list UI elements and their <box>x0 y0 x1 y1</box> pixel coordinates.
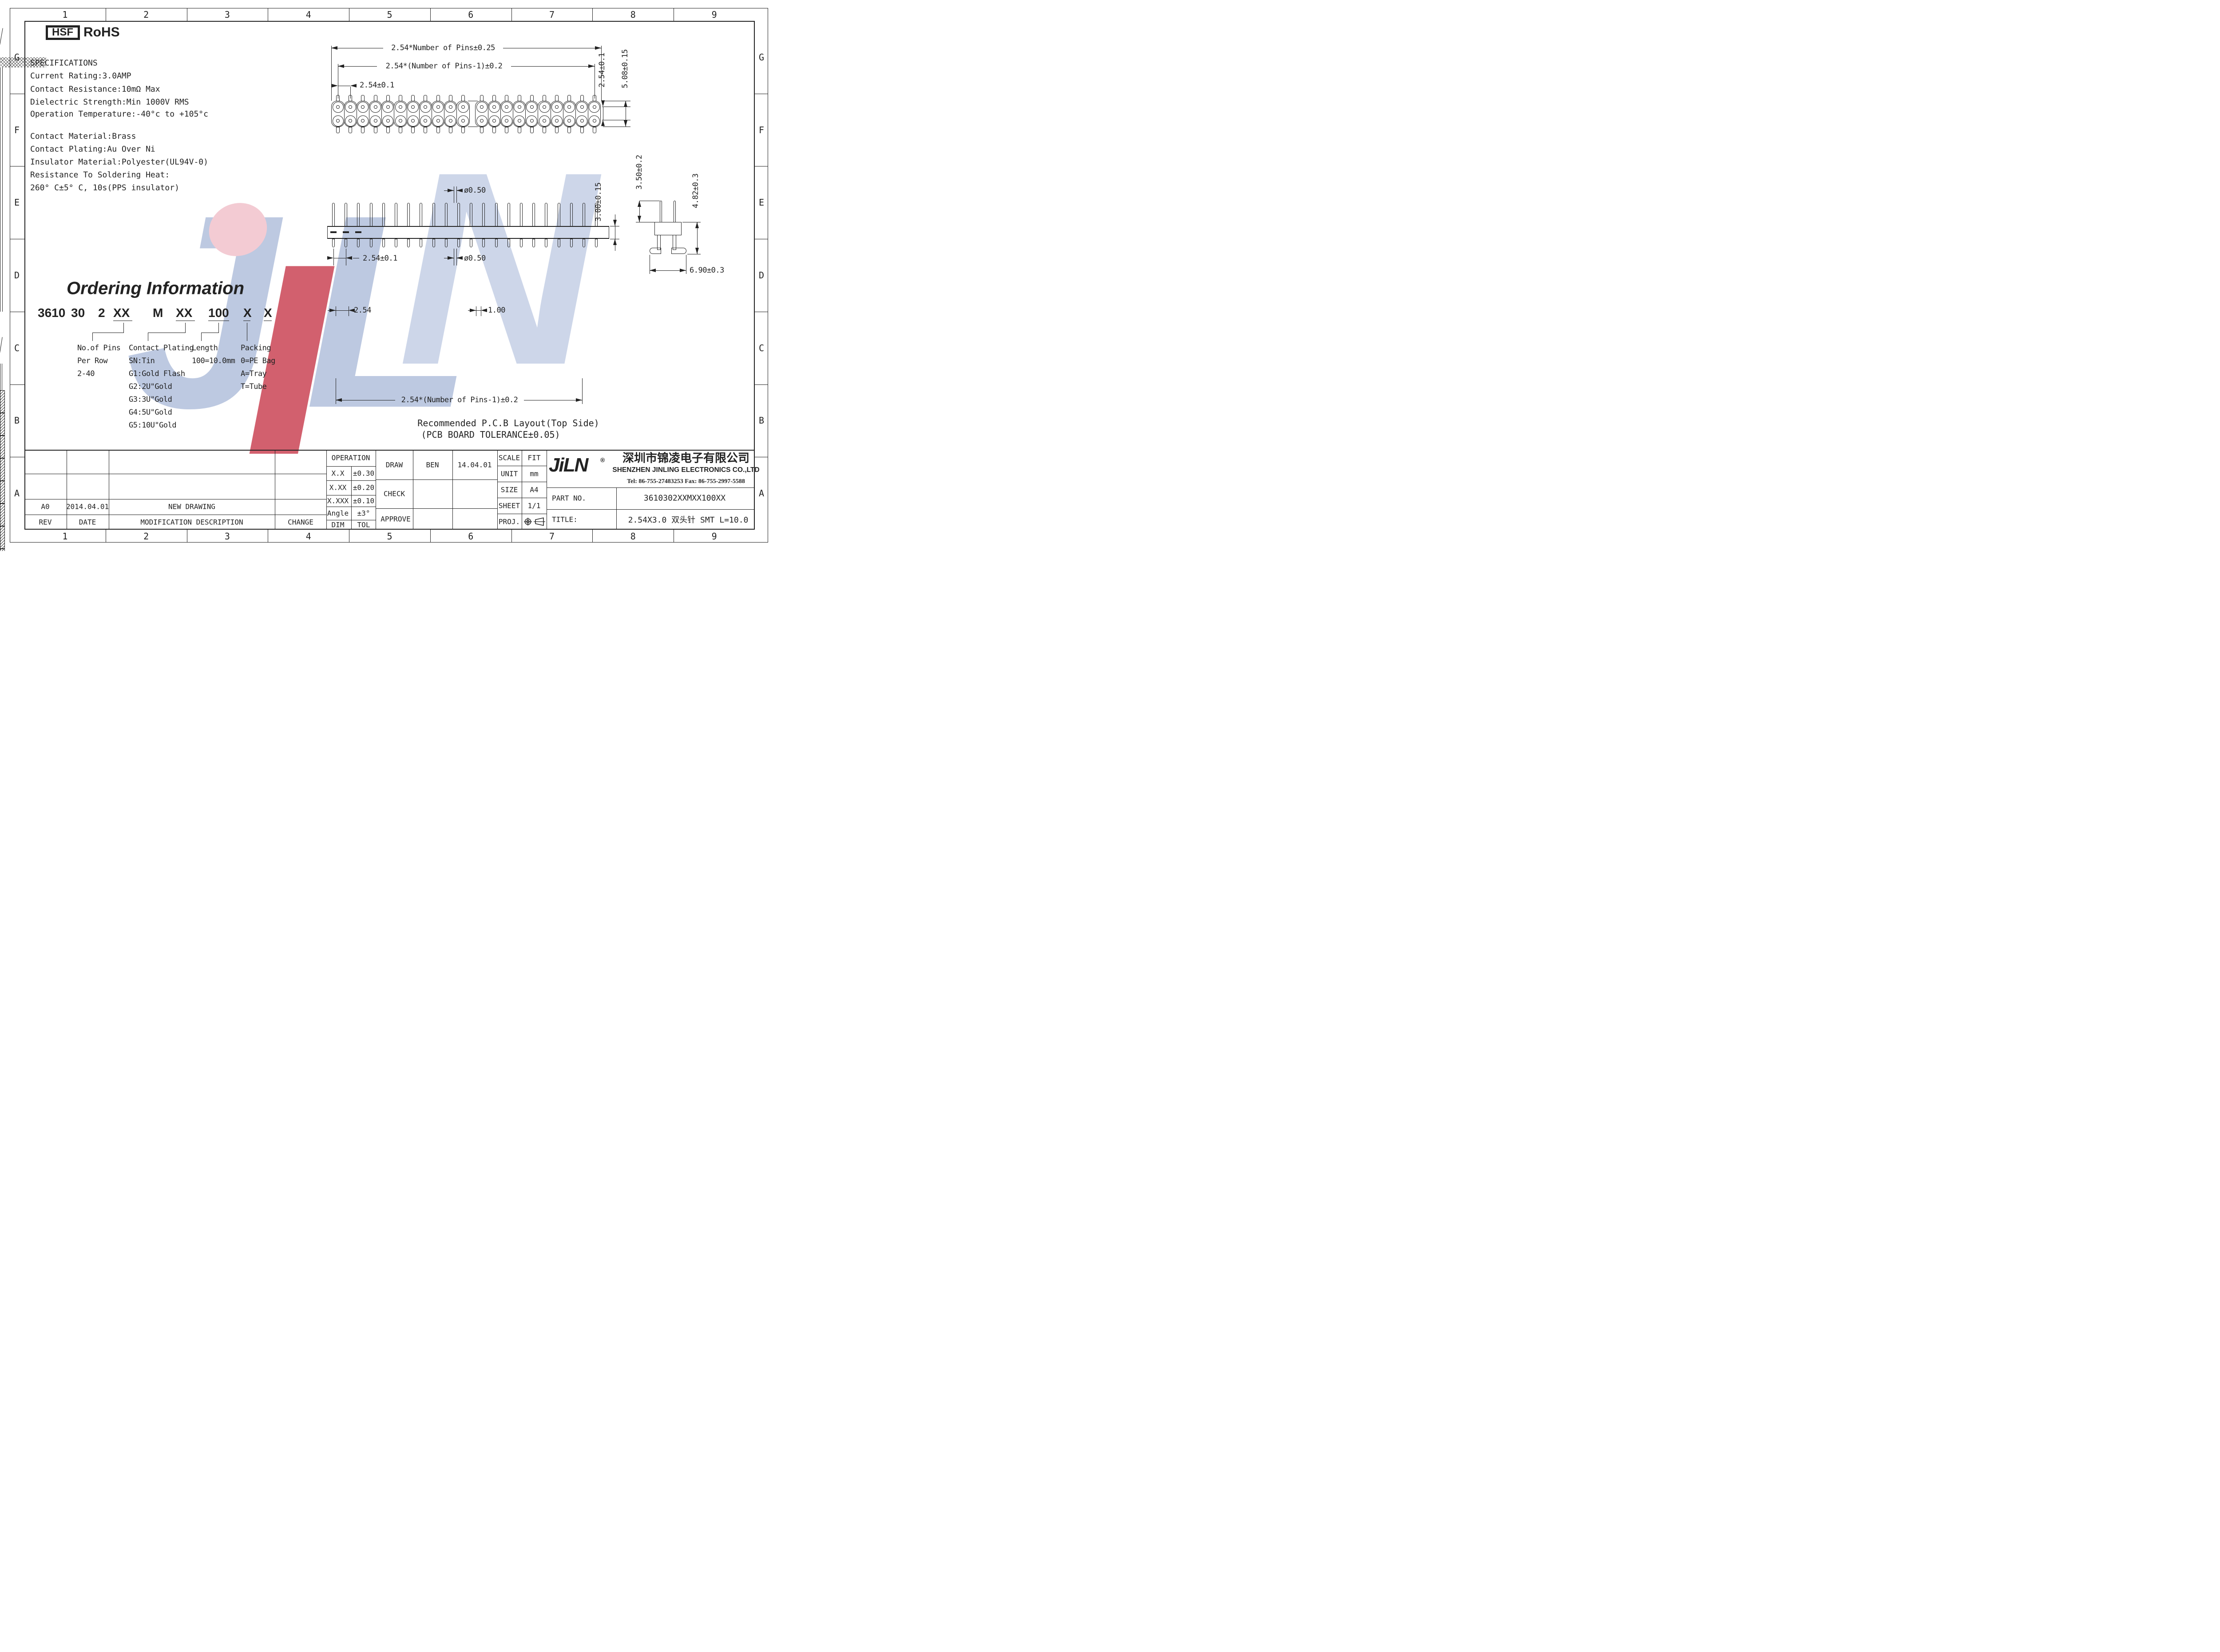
topview-contact-inner <box>336 105 340 109</box>
grid-col-label-top: 4 <box>306 9 311 20</box>
ordering-underline <box>264 321 272 321</box>
topview-pin-stub <box>530 127 534 133</box>
spec-line: 260° C±5° C, 10s(PPS insulator) <box>30 183 179 193</box>
dim-endview-foot-span: 6.90±0.3 <box>690 266 724 275</box>
topview-contact-inner <box>399 105 402 109</box>
sideview-pin-top <box>332 203 335 226</box>
dim-sideview-pin-dia-top: ø0.50 <box>464 186 486 195</box>
a <box>470 309 476 312</box>
band-divider-bottom <box>268 530 268 543</box>
topview-pin-stub <box>386 127 390 133</box>
band-divider-top <box>106 8 106 21</box>
grid-row-label-left: F <box>14 125 20 135</box>
grid-row-label-right: A <box>759 488 764 499</box>
band-divider-top <box>187 8 187 21</box>
ordering-annotation-line: SN:Tin <box>129 357 155 365</box>
ordering-annotation-line: Per Row <box>77 357 107 365</box>
topview-pin-stub <box>361 127 365 133</box>
tb-hline <box>376 508 497 509</box>
sideview-pin-bottom <box>432 239 435 247</box>
check-label: CHECK <box>384 490 405 498</box>
tb-hline <box>326 507 376 507</box>
topview-pin-stub <box>518 95 521 101</box>
ordering-code-group: X <box>243 306 252 320</box>
ordering-code-group: M <box>153 306 163 320</box>
rev-header-change: CHANGE <box>288 518 313 527</box>
dim <box>511 66 595 67</box>
grid-row-label-right: E <box>759 197 764 208</box>
tb-vline <box>497 450 498 530</box>
part-no-value: 3610302XXMXX100XX <box>644 494 725 503</box>
sideview-pin-top <box>595 203 598 226</box>
grid-col-label-top: 6 <box>468 9 473 20</box>
a <box>336 398 342 402</box>
grid-col-label-bottom: 2 <box>143 531 149 542</box>
topview-pin-stub <box>436 95 440 101</box>
band-divider-bottom <box>187 530 187 543</box>
tb-hline <box>326 520 376 520</box>
grid-row-label-right: C <box>759 343 764 353</box>
a <box>329 309 336 312</box>
a <box>695 222 699 228</box>
leader <box>92 333 124 333</box>
topview-pin-stub <box>336 127 340 133</box>
ordering-annotation-line: 0=PE Bag <box>241 357 275 365</box>
ordering-code-group: 2 <box>98 306 105 320</box>
grid-col-label-top: 7 <box>549 9 555 20</box>
sideview-pin-bottom <box>357 239 360 247</box>
spec-line: Contact Material:Brass <box>30 132 136 141</box>
draw-label: DRAW <box>386 461 403 469</box>
a <box>448 256 454 260</box>
band-divider-bottom <box>592 530 593 543</box>
tb-vline <box>616 487 617 530</box>
topview-pin-stub <box>424 95 427 101</box>
dim-pcb-pad-width: 1.00 <box>488 306 505 315</box>
sideview-contact-bar <box>355 231 361 233</box>
topview-pin-stub <box>424 127 427 133</box>
topview-contact-inner <box>480 119 484 123</box>
tol-header: OPERATION <box>332 454 370 462</box>
sideview-pin-top <box>432 203 435 226</box>
band-divider-left <box>10 384 24 385</box>
topview-contact-inner <box>436 119 440 123</box>
topview-contact-inner <box>449 119 452 123</box>
sideview-pin-bottom <box>595 239 598 247</box>
tb-line <box>24 450 755 451</box>
tb-hline <box>376 479 497 480</box>
grid-col-label-bottom: 3 <box>225 531 230 542</box>
unit-label: UNIT <box>501 470 518 478</box>
topview-pin-stub <box>492 95 496 101</box>
dim <box>336 400 395 400</box>
band-divider-right <box>755 166 768 166</box>
sideview-pin-top <box>445 203 448 226</box>
sideview-pin-top <box>420 203 422 226</box>
unit-value: mm <box>530 470 538 478</box>
topview-pin-stub <box>593 127 596 133</box>
ordering-annotation-line: 100=10.0mm <box>192 357 235 365</box>
sideview-pin-bottom <box>420 239 422 247</box>
band-divider-right <box>755 312 768 312</box>
grid-col-label-bottom: 4 <box>306 531 311 542</box>
size-value: A4 <box>530 486 538 494</box>
topview-pin-stub <box>543 95 546 101</box>
rev-header-rev: REV <box>39 518 52 527</box>
sideview-pin-bottom <box>382 239 385 247</box>
sideview-pin-bottom <box>507 239 510 247</box>
sideview-pin-top <box>407 203 410 226</box>
tb-vline <box>67 450 67 530</box>
topview-pin-stub <box>580 95 584 101</box>
topview-break-edge <box>468 101 478 101</box>
topview-pin-stub <box>555 95 559 101</box>
a <box>601 120 605 126</box>
sideview-pin-bottom <box>407 239 410 247</box>
dim <box>338 86 350 86</box>
scale-value: FIT <box>528 454 541 462</box>
leader <box>148 333 148 341</box>
dim <box>524 400 582 400</box>
topview-pin-stub <box>567 95 571 101</box>
sideview-pin-bottom <box>457 239 460 247</box>
rev-value: A0 <box>41 503 49 511</box>
a <box>456 256 463 260</box>
topview-pin-stub <box>411 127 415 133</box>
ordering-title: Ordering Information <box>67 279 244 299</box>
endview-foot <box>650 248 661 254</box>
a <box>695 248 699 254</box>
tb-hline <box>497 514 547 514</box>
rohs-badge: RoHS <box>83 25 120 40</box>
tb-hline <box>24 499 326 499</box>
pcb-caption-1: Recommended P.C.B Layout(Top Side) <box>417 418 599 428</box>
ordering-annotation-line: A=Tray <box>241 369 266 378</box>
grid-col-label-top: 8 <box>630 9 636 20</box>
endview-foot <box>671 248 686 254</box>
tb-vline <box>275 450 275 530</box>
topview-contact-inner <box>593 105 596 109</box>
topview-pin-stub <box>530 95 534 101</box>
tol-r2-val: ±0.10 <box>353 497 374 505</box>
ordering-annotation-line: G5:10U"Gold <box>129 421 176 430</box>
grid-col-label-bottom: 1 <box>62 531 67 542</box>
draw-date: 14.04.01 <box>457 461 492 469</box>
dim <box>582 378 583 404</box>
band-divider-bottom <box>511 530 512 543</box>
dim <box>687 254 701 254</box>
a <box>346 256 352 260</box>
ordering-underline <box>208 321 229 321</box>
grid-col-label-top: 5 <box>387 9 392 20</box>
leader <box>247 323 247 341</box>
tb-vline <box>109 450 109 530</box>
sideview-pin-bottom <box>545 239 547 247</box>
topview-contact-inner <box>374 119 377 123</box>
dim-topview-row-pitch: 2.54±0.1 <box>598 53 607 87</box>
topview-pin-stub <box>518 127 521 133</box>
hsf-badge: HSF <box>52 26 73 39</box>
sideview-pin-top <box>532 203 535 226</box>
dim <box>686 255 686 274</box>
grid-row-label-right: G <box>759 52 764 63</box>
ordering-code-group: X <box>264 306 272 320</box>
dim <box>333 249 334 265</box>
ordering-annotation-line: Length <box>192 344 218 353</box>
band-divider-top <box>268 8 268 21</box>
band-divider-right <box>755 457 768 457</box>
band-divider-top <box>430 8 431 21</box>
dim <box>476 306 476 316</box>
tb-vline <box>326 450 327 530</box>
sideview-pin-top <box>345 203 347 226</box>
dim <box>331 46 332 101</box>
band-divider-left <box>10 457 24 457</box>
dim-topview-overall: 2.54*Number of Pins±0.25 <box>391 44 495 52</box>
rev-header-date: DATE <box>79 518 96 527</box>
topview-pin-stub <box>567 127 571 133</box>
sideview-pin-bottom <box>470 239 472 247</box>
grid-col-label-bottom: 8 <box>630 531 636 542</box>
leader <box>185 323 186 333</box>
title-label: TITLE: <box>552 515 578 524</box>
topview-contact-inner <box>436 105 440 109</box>
tol-r0-val: ±0.30 <box>353 469 374 478</box>
topview-pin-stub <box>505 127 508 133</box>
topview-pin-stub <box>374 95 377 101</box>
sideview-contact-bar <box>343 231 349 233</box>
topview-contact-inner <box>336 119 340 123</box>
ordering-annotation-line: G1:Gold Flash <box>129 369 185 378</box>
endview-pin <box>660 201 662 222</box>
topview-pin-stub <box>399 127 402 133</box>
dim-sideview-pin-dia-bottom: ø0.50 <box>464 254 486 263</box>
grid-row-label-left: G <box>14 52 20 63</box>
tol-footer-tol: TOL <box>357 521 370 529</box>
band-divider-left <box>10 312 24 312</box>
sideview-body <box>327 226 609 239</box>
drawing-sheet: J ı L N HSF RoHS Ordering Information 2.… <box>0 0 779 551</box>
tb-hline <box>497 482 547 482</box>
a <box>624 120 627 127</box>
ordering-annotation-line: G2:2U"Gold <box>129 382 172 391</box>
sideview-pin-top <box>357 203 360 226</box>
tol-footer-dim: DIM <box>332 521 345 529</box>
ordering-code-group: XX <box>113 306 130 320</box>
tol-r3-dim: Angle <box>327 509 349 518</box>
third-angle-projection-icon <box>524 517 545 527</box>
grid-col-label-bottom: 7 <box>549 531 555 542</box>
topview-pin-stub <box>374 127 377 133</box>
leader <box>92 333 93 341</box>
rev-date: 2014.04.01 <box>66 503 109 511</box>
band-divider-bottom <box>674 530 674 543</box>
sideview-pin-top <box>507 203 510 226</box>
dim-pcb-pitch: 2.54 <box>354 306 371 315</box>
a <box>638 216 641 222</box>
topview-pin-stub <box>492 127 496 133</box>
a <box>588 64 595 68</box>
tb-vline <box>452 450 453 530</box>
topview-contact-inner <box>580 105 584 109</box>
spec-line: Insulator Material:Polyester(UL94V-0) <box>30 158 208 167</box>
ordering-annotation-line: G3:3U"Gold <box>129 395 172 404</box>
dim-sideview-pitch-bottom: 2.54±0.1 <box>363 254 397 263</box>
dim-pcb-overall: 2.54*(Number of Pins-1)±0.2 <box>401 396 518 404</box>
a <box>349 309 355 312</box>
grid-row-label-right: F <box>759 125 764 135</box>
band-divider-top <box>349 8 349 21</box>
a <box>448 189 454 192</box>
grid-col-label-top: 1 <box>62 9 67 20</box>
tb-vline <box>522 450 522 530</box>
size-label: SIZE <box>501 486 518 494</box>
sideview-pin-bottom <box>445 239 448 247</box>
leader <box>218 323 219 333</box>
pcb-caption-2: (PCB BOARD TOLERANCE±0.05) <box>421 429 560 440</box>
tb-vline <box>413 450 413 530</box>
band-divider-bottom <box>106 530 106 543</box>
sideview-pin-top <box>370 203 373 226</box>
a <box>613 220 617 226</box>
tb-hline <box>547 487 755 488</box>
leader <box>123 323 124 333</box>
leader <box>201 333 202 341</box>
grid-col-label-bottom: 5 <box>387 531 392 542</box>
topview-pin-stub <box>555 127 559 133</box>
topview-contact-inner <box>530 119 534 123</box>
sideview-pin-bottom <box>495 239 498 247</box>
band-divider-bottom <box>430 530 431 543</box>
grid-row-label-left: A <box>14 488 20 499</box>
dim-topview-pitch: 2.54±0.1 <box>360 81 394 90</box>
ordering-annotation-line: 2-40 <box>77 369 95 378</box>
spec-line: Dielectric Strength:Min 1000V RMS <box>30 98 189 107</box>
sideview-pin-bottom <box>558 239 560 247</box>
ordering-code-group: XX <box>176 306 192 320</box>
topview-pin-stub <box>349 127 352 133</box>
dim <box>336 306 336 316</box>
ordering-underline <box>176 321 195 321</box>
band-divider-top <box>674 8 674 21</box>
ordering-annotation-line: No.of Pins <box>77 344 120 353</box>
topview-contact-inner <box>530 105 534 109</box>
dim <box>636 222 654 222</box>
grid-col-label-bottom: 9 <box>712 531 717 542</box>
a <box>332 84 338 87</box>
sideview-pin-bottom <box>520 239 523 247</box>
company-reg-mark: ® <box>600 456 605 464</box>
topview-contact-inner <box>386 105 390 109</box>
topview-contact-inner <box>580 119 584 123</box>
a <box>595 46 601 50</box>
spec-line: Resistance To Soldering Heat: <box>30 170 170 180</box>
topview-contact-inner <box>399 119 402 123</box>
tb-hline <box>326 480 376 481</box>
spec-line: Contact Plating:Au Over Ni <box>30 145 155 154</box>
ordering-annotation-line: Packing <box>241 344 271 353</box>
topview-pin-stub <box>449 127 452 133</box>
sideview-contact-bar <box>330 231 337 233</box>
topview-pin-stub <box>480 95 484 101</box>
sideview-pin-top <box>583 203 585 226</box>
topview-contact-inner <box>461 119 465 123</box>
topview-pin-stub <box>449 95 452 101</box>
topview-pin-stub <box>436 127 440 133</box>
dim-endview-body-foot: 4.82±0.3 <box>691 174 700 208</box>
topview-pin-stub <box>399 95 402 101</box>
dim <box>336 310 349 311</box>
topview-contact-inner <box>374 105 377 109</box>
topview-contact-inner <box>461 105 465 109</box>
draw-name: BEN <box>426 461 439 469</box>
grid-col-label-top: 9 <box>712 9 717 20</box>
tb-vline <box>547 450 547 530</box>
dim <box>333 258 346 258</box>
company-name-cn: 深圳市锦凌电子有限公司 <box>622 449 749 466</box>
sideview-pin-bottom <box>395 239 397 247</box>
ordering-code-group: 30 <box>71 306 85 320</box>
sheet-value: 1/1 <box>528 502 541 510</box>
a <box>624 101 627 107</box>
spec-line: Operation Temperature:-40°c to +105°c <box>30 110 208 119</box>
ordering-annotation-line: Contact Plating <box>129 344 194 353</box>
topview-pin-stub <box>543 127 546 133</box>
a <box>350 84 357 87</box>
sideview-pin-top <box>545 203 547 226</box>
a <box>638 201 641 207</box>
sheet-label: SHEET <box>499 502 520 510</box>
a <box>613 239 617 245</box>
band-divider-top <box>592 8 593 21</box>
tol-r3-val: ±3° <box>357 509 370 518</box>
topview-contact-inner <box>449 105 452 109</box>
leader <box>148 333 186 333</box>
topview-contact-inner <box>386 119 390 123</box>
sideview-pin-top <box>495 203 498 226</box>
ordering-underline <box>243 321 250 321</box>
tol-r1-val: ±0.20 <box>353 483 374 492</box>
company-tel-fax: Tel: 86-755-27483253 Fax: 86-755-2997-55… <box>627 478 745 485</box>
leader <box>201 333 219 333</box>
tb-hline <box>24 515 326 515</box>
topview-pin-stub <box>411 95 415 101</box>
sideview-pin-top <box>382 203 385 226</box>
tb-hline <box>326 466 376 467</box>
sideview-pin-top <box>558 203 560 226</box>
dim-endview-pin-above: 3.50±0.2 <box>635 155 644 190</box>
dim <box>603 107 603 120</box>
grid-row-label-left: D <box>14 270 20 281</box>
proj-label: PROJ. <box>499 518 520 526</box>
sideview-pin-bottom <box>370 239 373 247</box>
sideview-pin-top <box>570 203 573 226</box>
dim <box>595 64 595 99</box>
a <box>680 269 686 272</box>
tol-r2-dim: X.XXX <box>327 497 349 505</box>
ordering-underline <box>113 321 132 321</box>
sideview-pin-top <box>470 203 472 226</box>
band-divider-right <box>755 94 768 94</box>
tb-vline <box>376 450 376 530</box>
company-logo: JiLN <box>549 454 587 476</box>
dim <box>476 310 481 311</box>
topview-pin-stub <box>461 127 465 133</box>
sideview-pin-bottom <box>345 239 347 247</box>
topview-pin-stub <box>480 127 484 133</box>
grid-col-label-bottom: 6 <box>468 531 473 542</box>
tb-hline <box>497 498 547 498</box>
